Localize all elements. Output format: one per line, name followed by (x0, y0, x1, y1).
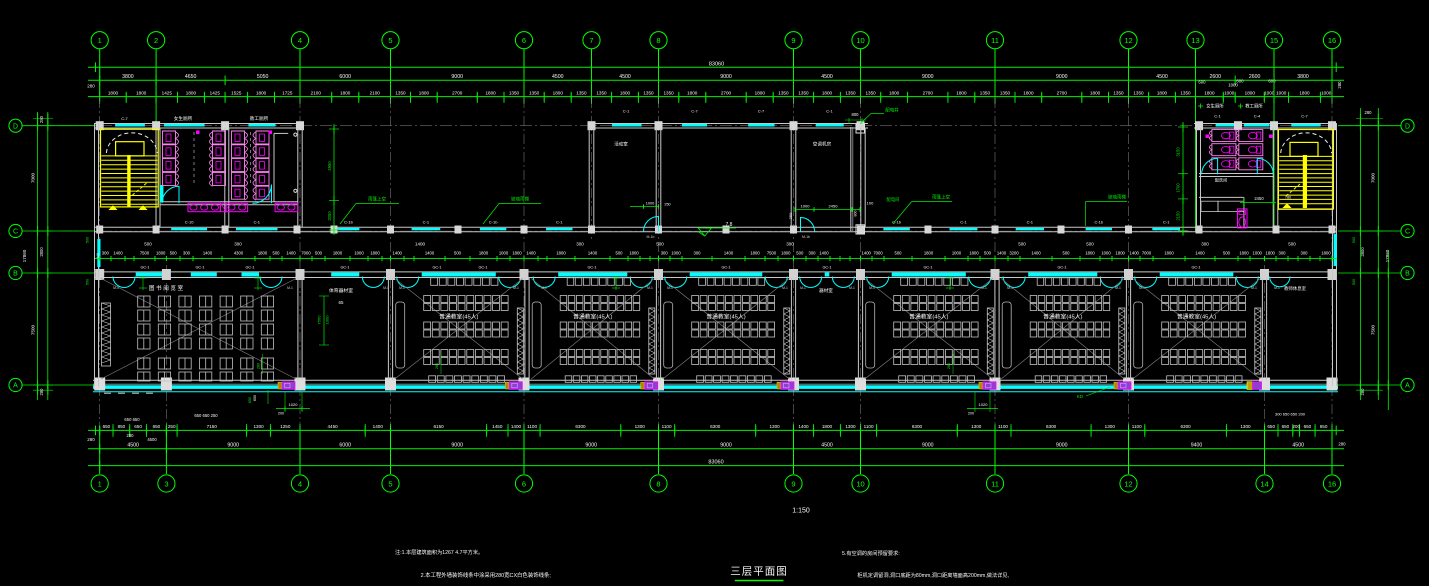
svg-text:250: 250 (664, 203, 670, 207)
svg-text:GC-1: GC-1 (1057, 265, 1066, 269)
svg-text:280: 280 (1365, 110, 1373, 115)
svg-text:1400: 1400 (819, 251, 829, 256)
svg-text:GC-1: GC-1 (340, 265, 349, 269)
svg-text:1400: 1400 (286, 251, 296, 256)
svg-text:1400: 1400 (203, 251, 213, 256)
svg-text:1300: 1300 (635, 424, 646, 429)
svg-text:6300: 6300 (575, 424, 586, 429)
svg-text:1800: 1800 (108, 90, 119, 95)
svg-text:7000: 7000 (301, 251, 311, 256)
svg-text:1425: 1425 (210, 90, 221, 95)
svg-text:1350: 1350 (643, 90, 654, 95)
svg-text:100: 100 (867, 201, 874, 206)
svg-text:1000: 1000 (1224, 90, 1235, 95)
svg-text:1400: 1400 (113, 251, 123, 256)
svg-text:280: 280 (1338, 442, 1346, 447)
svg-text:8: 8 (656, 480, 660, 489)
svg-text:普通教室(45人): 普通教室(45人) (1043, 313, 1082, 321)
svg-text:D: D (13, 123, 18, 130)
svg-text:1350: 1350 (576, 90, 587, 95)
svg-text:1400: 1400 (1031, 251, 1041, 256)
svg-text:6300: 6300 (912, 424, 923, 429)
svg-text:GC-1: GC-1 (587, 265, 596, 269)
svg-text:C-1: C-1 (623, 109, 630, 114)
svg-text:1800: 1800 (419, 90, 430, 95)
svg-text:4500: 4500 (147, 437, 157, 442)
svg-text:250: 250 (168, 424, 176, 429)
svg-text:17860: 17860 (1385, 249, 1390, 262)
svg-text:C-1: C-1 (960, 219, 967, 224)
svg-text:6000: 6000 (339, 443, 351, 449)
svg-text:GC-1: GC-1 (721, 265, 730, 269)
svg-text:280: 280 (127, 433, 135, 438)
svg-text:2.本工程外墙装饰线条中涂采用280宽CX白色装饰线条;: 2.本工程外墙装饰线条中涂采用280宽CX白色装饰线条; (421, 571, 552, 579)
svg-text:M-1: M-1 (1274, 286, 1280, 290)
svg-text:2450: 2450 (1254, 196, 1264, 201)
svg-text:1400: 1400 (862, 251, 872, 256)
svg-text:1300: 1300 (845, 424, 856, 429)
svg-text:10: 10 (856, 480, 864, 489)
svg-text:1800: 1800 (156, 251, 166, 256)
svg-text:280: 280 (947, 363, 951, 369)
svg-text:C-1: C-1 (556, 219, 563, 224)
svg-text:650: 650 (1267, 424, 1275, 429)
svg-text:2050: 2050 (327, 211, 332, 221)
svg-text:注:1.本层建筑面积为1267 4.7平方米。: 注:1.本层建筑面积为1267 4.7平方米。 (395, 548, 483, 556)
svg-text:4500: 4500 (552, 74, 564, 80)
svg-text:M-1: M-1 (113, 286, 119, 290)
svg-text:C-1: C-1 (1214, 114, 1221, 119)
svg-text:1800: 1800 (1245, 90, 1256, 95)
svg-text:7500: 7500 (31, 324, 36, 335)
svg-text:1800: 1800 (333, 251, 343, 256)
svg-text:1250: 1250 (280, 424, 291, 429)
svg-text:KD: KD (1077, 394, 1084, 399)
svg-text:4500: 4500 (619, 74, 631, 80)
svg-text:M-1: M-1 (849, 286, 855, 290)
svg-text:1100: 1100 (864, 424, 874, 429)
svg-text:2800: 2800 (1360, 247, 1365, 257)
svg-text:M-1: M-1 (1251, 286, 1257, 290)
svg-text:1800: 1800 (553, 90, 564, 95)
svg-text:9000: 9000 (451, 74, 463, 80)
svg-text:1100: 1100 (1132, 424, 1142, 429)
svg-text:1350: 1350 (798, 90, 809, 95)
svg-text:普通教室(45人): 普通教室(45人) (439, 313, 478, 321)
svg-text:1020: 1020 (289, 402, 299, 407)
svg-text:C-7: C-7 (1301, 114, 1308, 119)
svg-text:4500: 4500 (127, 443, 139, 449)
svg-text:500: 500 (86, 279, 90, 285)
svg-text:1300: 1300 (1105, 424, 1116, 429)
svg-text:6: 6 (522, 36, 526, 45)
svg-text:4500: 4500 (1156, 74, 1168, 80)
svg-text:600: 600 (1198, 80, 1206, 85)
svg-text:1300: 1300 (1240, 424, 1251, 429)
svg-text:17860: 17860 (22, 249, 27, 262)
svg-text:300: 300 (102, 251, 110, 256)
svg-text:空调机房: 空调机房 (813, 141, 832, 148)
svg-text:A: A (13, 383, 18, 390)
svg-text:300: 300 (234, 242, 242, 247)
svg-text:7000: 7000 (31, 172, 36, 183)
svg-text:配电间: 配电间 (887, 196, 900, 203)
svg-text:M-1: M-1 (383, 286, 389, 290)
svg-text:300 650 650 200: 300 650 650 200 (1275, 412, 1306, 417)
svg-text:1100: 1100 (998, 424, 1008, 429)
svg-text:GC-1: GC-1 (822, 265, 831, 269)
svg-text:14: 14 (1260, 480, 1268, 489)
svg-text:7500: 7500 (1371, 324, 1376, 335)
svg-text:盥洗间: 盥洗间 (1215, 177, 1228, 184)
svg-text:6: 6 (522, 480, 526, 489)
svg-text:300: 300 (661, 251, 669, 256)
svg-text:D: D (1405, 123, 1410, 130)
svg-text:柜机定调留洞,洞口底距为80mm,洞口距离墙面高200mm,: 柜机定调留洞,洞口底距为80mm,洞口距离墙面高200mm,做法详见, (857, 571, 1009, 579)
svg-text:9000: 9000 (451, 443, 463, 449)
svg-text:500: 500 (1086, 242, 1094, 247)
svg-text:300: 300 (1279, 251, 1287, 256)
svg-text:体育器材室: 体育器材室 (329, 287, 353, 294)
svg-text:1800: 1800 (136, 90, 147, 95)
svg-text:1350: 1350 (1180, 90, 1191, 95)
svg-text:C-10: C-10 (185, 219, 194, 224)
svg-text:500: 500 (315, 251, 323, 256)
svg-text:16: 16 (1328, 36, 1336, 45)
svg-text:C-1: C-1 (423, 219, 430, 224)
svg-text:7150: 7150 (207, 424, 218, 429)
svg-text:玻璃雨棚: 玻璃雨棚 (511, 196, 529, 203)
svg-text:650: 650 (103, 424, 111, 429)
svg-text:7560: 7560 (317, 315, 322, 325)
svg-text:4: 4 (298, 36, 302, 45)
svg-text:15: 15 (1270, 36, 1278, 45)
svg-text:GC-1: GC-1 (923, 265, 932, 269)
svg-text:1450: 1450 (492, 424, 503, 429)
svg-text:3150: 3150 (1176, 147, 1181, 157)
svg-text:9000: 9000 (720, 443, 732, 449)
svg-text:1400: 1400 (997, 251, 1007, 256)
svg-text:1400: 1400 (415, 242, 426, 247)
svg-text:500: 500 (144, 242, 152, 247)
svg-text:1800: 1800 (755, 90, 766, 95)
svg-text:650: 650 (153, 424, 161, 429)
svg-text:教工厕所: 教工厕所 (1245, 103, 1263, 110)
svg-text:12: 12 (1124, 480, 1132, 489)
svg-text:9: 9 (791, 480, 795, 489)
svg-text:1000: 1000 (671, 251, 681, 256)
svg-text:7: 7 (589, 36, 593, 45)
svg-text:500: 500 (895, 251, 903, 256)
svg-text:1800: 1800 (479, 251, 489, 256)
svg-text:GC-1: GC-1 (1191, 265, 1200, 269)
svg-text:1400: 1400 (1130, 251, 1140, 256)
svg-text:10: 10 (856, 36, 864, 45)
svg-text:13: 13 (1191, 36, 1199, 45)
svg-text:M-1b: M-1b (802, 235, 810, 239)
svg-text:1000: 1000 (801, 203, 811, 208)
svg-text:280: 280 (39, 388, 44, 396)
svg-text:6300: 6300 (1180, 424, 1191, 429)
svg-text:1800: 1800 (889, 90, 900, 95)
svg-text:280: 280 (1360, 388, 1365, 396)
svg-text:16: 16 (1328, 480, 1336, 489)
svg-text:图 书 阅 览 室: 图 书 阅 览 室 (149, 284, 184, 292)
svg-text:1800: 1800 (556, 251, 566, 256)
svg-text:600: 600 (1268, 79, 1276, 84)
svg-text:1800: 1800 (822, 90, 833, 95)
svg-text:1300: 1300 (769, 424, 780, 429)
svg-text:1000: 1000 (1264, 90, 1275, 95)
svg-text:GC-1: GC-1 (245, 265, 254, 269)
svg-text:1: 1 (98, 480, 102, 489)
svg-text:2700: 2700 (1057, 90, 1068, 95)
svg-text:300: 300 (1201, 242, 1209, 247)
svg-text:M-1: M-1 (782, 286, 788, 290)
svg-text:1800: 1800 (370, 251, 380, 256)
svg-text:M-1: M-1 (513, 286, 519, 290)
svg-text:500: 500 (616, 251, 624, 256)
svg-text:C-1b: C-1b (344, 219, 353, 224)
svg-text:1800: 1800 (924, 251, 934, 256)
svg-text:B: B (13, 271, 18, 278)
svg-text:教师休息室: 教师休息室 (1284, 285, 1307, 292)
svg-text:9000: 9000 (1056, 443, 1068, 449)
svg-text:1:150: 1:150 (792, 508, 810, 515)
svg-text:3: 3 (164, 480, 168, 489)
svg-text:300: 300 (694, 251, 702, 256)
svg-text:65: 65 (339, 300, 344, 305)
svg-text:1300: 1300 (253, 424, 264, 429)
svg-text:5.有空调的房间预留要求:: 5.有空调的房间预留要求: (842, 549, 900, 557)
svg-text:1350: 1350 (529, 90, 540, 95)
svg-text:M-1: M-1 (1139, 286, 1145, 290)
svg-text:GC-1: GC-1 (140, 265, 149, 269)
svg-text:280: 280 (435, 363, 439, 369)
svg-text:300: 300 (576, 242, 584, 247)
svg-text:1800: 1800 (750, 251, 760, 256)
svg-text:2700: 2700 (721, 90, 732, 95)
svg-text:1800: 1800 (956, 90, 967, 95)
svg-text:6000: 6000 (339, 74, 351, 80)
svg-text:B: B (1405, 271, 1410, 278)
svg-text:1800: 1800 (629, 251, 639, 256)
svg-text:650 650: 650 650 (124, 417, 140, 422)
svg-text:9: 9 (791, 36, 795, 45)
svg-text:C-7: C-7 (758, 109, 765, 114)
svg-text:650: 650 (1282, 424, 1290, 429)
svg-text:280: 280 (257, 363, 261, 369)
svg-text:4500: 4500 (821, 74, 833, 80)
svg-text:7500: 7500 (767, 251, 777, 256)
svg-text:4450: 4450 (327, 424, 338, 429)
svg-text:C-1: C-1 (826, 109, 833, 114)
svg-text:1800: 1800 (1023, 90, 1034, 95)
svg-text:4300: 4300 (234, 251, 244, 256)
svg-text:600: 600 (1236, 79, 1244, 84)
svg-text:M-1: M-1 (869, 286, 875, 290)
svg-text:2600: 2600 (1249, 74, 1261, 80)
svg-text:8: 8 (656, 36, 660, 45)
svg-text:9400: 9400 (1191, 443, 1203, 449)
svg-text:4: 4 (298, 480, 302, 489)
svg-text:5050: 5050 (257, 74, 269, 80)
svg-text:普通教室(45人): 普通教室(45人) (909, 313, 948, 321)
svg-text:2700: 2700 (923, 90, 934, 95)
svg-text:M-1: M-1 (399, 286, 405, 290)
svg-text:1000: 1000 (1253, 251, 1263, 256)
svg-text:1350: 1350 (1113, 90, 1124, 95)
svg-text:2600: 2600 (1210, 74, 1222, 80)
svg-text:女生厕所: 女生厕所 (1206, 103, 1224, 110)
svg-text:300: 300 (809, 251, 817, 256)
svg-text:1800: 1800 (1157, 90, 1168, 95)
svg-text:器材室: 器材室 (819, 287, 833, 294)
svg-text:1400: 1400 (1195, 251, 1205, 256)
svg-text:1800: 1800 (969, 251, 979, 256)
svg-text:250: 250 (788, 212, 793, 219)
svg-text:1: 1 (98, 36, 102, 45)
svg-text:11: 11 (991, 36, 999, 45)
svg-text:A: A (1405, 383, 1410, 390)
svg-text:500: 500 (984, 251, 992, 256)
svg-text:玻璃雨棚: 玻璃雨棚 (1108, 193, 1126, 200)
svg-text:2150: 2150 (1176, 211, 1181, 221)
svg-text:M-1: M-1 (541, 286, 547, 290)
svg-text:C: C (1405, 229, 1410, 236)
svg-text:83060: 83060 (709, 61, 724, 67)
svg-text:C-1b: C-1b (489, 219, 498, 224)
svg-text:1000: 1000 (1276, 90, 1287, 95)
svg-text:850: 850 (118, 424, 126, 429)
svg-text:1400: 1400 (588, 251, 598, 256)
svg-text:5: 5 (388, 36, 392, 45)
svg-text:5: 5 (388, 480, 392, 489)
svg-text:1350: 1350 (395, 90, 406, 95)
svg-text:7000: 7000 (873, 251, 883, 256)
svg-text:3800: 3800 (1297, 74, 1309, 80)
svg-text:6300: 6300 (710, 424, 721, 429)
svg-text:1000: 1000 (354, 251, 364, 256)
svg-text:9000: 9000 (585, 443, 597, 449)
svg-text:280: 280 (87, 437, 95, 442)
svg-text:1000: 1000 (325, 315, 330, 325)
svg-text:3200: 3200 (1009, 251, 1019, 256)
svg-text:C-1: C-1 (1163, 219, 1170, 224)
svg-text:1400: 1400 (798, 424, 809, 429)
svg-text:2100: 2100 (311, 90, 322, 95)
svg-text:1000: 1000 (952, 251, 962, 256)
svg-text:300: 300 (183, 251, 191, 256)
svg-text:C-1b: C-1b (1094, 219, 1103, 224)
svg-text:1725: 1725 (282, 90, 293, 95)
svg-text:500: 500 (1352, 237, 1356, 243)
svg-text:9000: 9000 (922, 443, 934, 449)
svg-text:1800: 1800 (781, 251, 791, 256)
svg-text:7000: 7000 (1371, 172, 1376, 183)
svg-text:2100: 2100 (370, 90, 381, 95)
svg-text:500: 500 (1352, 279, 1356, 285)
svg-text:1100: 1100 (662, 424, 672, 429)
svg-text:1400: 1400 (425, 251, 435, 256)
svg-text:1020: 1020 (979, 402, 989, 407)
svg-text:1700: 1700 (1176, 183, 1181, 193)
svg-text:活动室: 活动室 (614, 141, 628, 148)
svg-text:650 650 250: 650 650 250 (194, 413, 218, 418)
svg-text:1800: 1800 (687, 90, 698, 95)
svg-text:7500: 7500 (140, 251, 150, 256)
svg-text:普通教室(45人): 普通教室(45人) (1177, 313, 1216, 321)
svg-text:1800: 1800 (258, 251, 268, 256)
svg-text:1350: 1350 (663, 90, 674, 95)
svg-text:C-1: C-1 (1027, 219, 1034, 224)
svg-text:M-1: M-1 (1115, 286, 1121, 290)
svg-text:1800: 1800 (186, 90, 197, 95)
svg-text:1800: 1800 (1116, 251, 1126, 256)
svg-text:1350: 1350 (1000, 90, 1011, 95)
svg-text:2450: 2450 (829, 203, 839, 208)
svg-text:1350: 1350 (778, 90, 789, 95)
svg-text:1800: 1800 (1299, 90, 1310, 95)
svg-text:650: 650 (253, 395, 257, 401)
svg-text:1350: 1350 (509, 90, 520, 95)
svg-text:雨篷上空: 雨篷上空 (368, 196, 386, 203)
svg-text:500: 500 (796, 251, 804, 256)
svg-text:1350: 1350 (980, 90, 991, 95)
svg-text:7.8: 7.8 (726, 222, 733, 228)
svg-text:1400: 1400 (511, 424, 522, 429)
svg-text:1800: 1800 (1204, 90, 1215, 95)
svg-text:200: 200 (278, 412, 284, 416)
svg-text:1800: 1800 (1164, 251, 1174, 256)
svg-text:1800: 1800 (485, 90, 496, 95)
svg-text:2800: 2800 (39, 247, 44, 257)
svg-text:1800: 1800 (1085, 251, 1095, 256)
svg-text:500: 500 (1063, 251, 1071, 256)
svg-text:C-1: C-1 (254, 219, 261, 224)
svg-text:1350: 1350 (865, 90, 876, 95)
svg-text:280: 280 (39, 115, 44, 123)
svg-text:1100: 1100 (527, 424, 537, 429)
svg-text:800: 800 (854, 211, 858, 217)
svg-text:1400: 1400 (724, 251, 734, 256)
svg-text:1800: 1800 (512, 251, 522, 256)
svg-text:1400: 1400 (526, 251, 536, 256)
svg-text:1800: 1800 (1321, 251, 1331, 256)
svg-text:800: 800 (852, 112, 860, 117)
svg-text:1800: 1800 (1266, 251, 1276, 256)
svg-text:650: 650 (134, 424, 142, 429)
svg-text:女生厕所: 女生厕所 (174, 115, 193, 122)
svg-text:500: 500 (1288, 242, 1296, 247)
svg-text:11: 11 (991, 480, 999, 489)
svg-text:4500: 4500 (821, 443, 833, 449)
svg-text:300: 300 (1301, 251, 1309, 256)
svg-text:三层平面图: 三层平面图 (730, 566, 788, 578)
svg-text:1425: 1425 (162, 90, 173, 95)
svg-text:6300: 6300 (1046, 424, 1057, 429)
svg-text:9000: 9000 (922, 74, 934, 80)
svg-text:200: 200 (968, 412, 974, 416)
svg-text:1000: 1000 (1101, 251, 1111, 256)
svg-text:C: C (13, 229, 18, 236)
svg-text:C-1b: C-1b (892, 219, 901, 224)
svg-text:280: 280 (87, 84, 95, 89)
svg-text:3800: 3800 (122, 74, 134, 80)
svg-text:1350: 1350 (845, 90, 856, 95)
svg-text:C-4: C-4 (1254, 114, 1261, 119)
svg-text:650: 650 (248, 397, 252, 403)
